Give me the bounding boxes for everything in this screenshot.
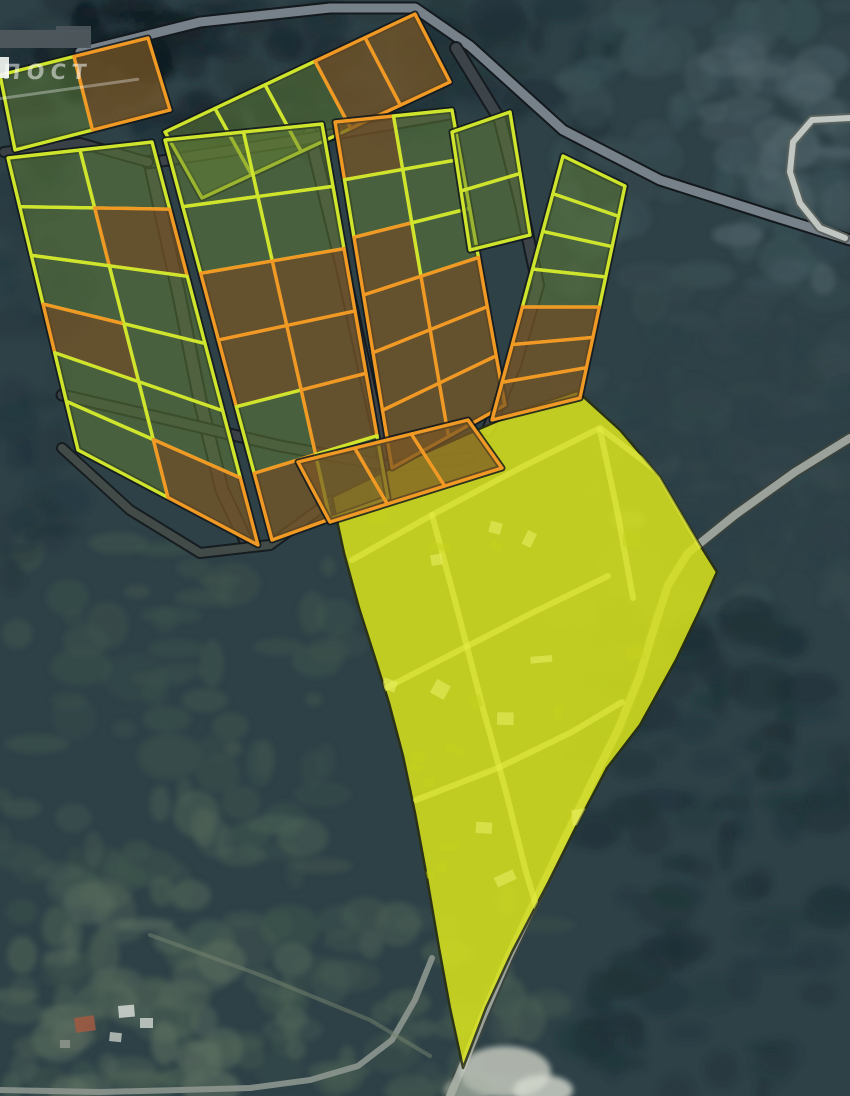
satellite-parcel-map: ПОСТ (0, 0, 850, 1096)
parcel-central-band-r0c1 (244, 124, 334, 197)
parcel-west-band-r0c1 (80, 142, 170, 209)
building (140, 1018, 153, 1028)
parcel-east-strip-r3c0 (522, 269, 605, 307)
building (109, 1032, 122, 1042)
building (60, 1040, 70, 1048)
map-canvas (0, 0, 850, 1096)
building (118, 1005, 135, 1018)
watermark-text: ПОСТ (2, 60, 94, 84)
parcel-central-band-r0c0 (165, 132, 258, 207)
top-left-gray-bar-step (56, 26, 91, 33)
building (74, 1015, 96, 1033)
